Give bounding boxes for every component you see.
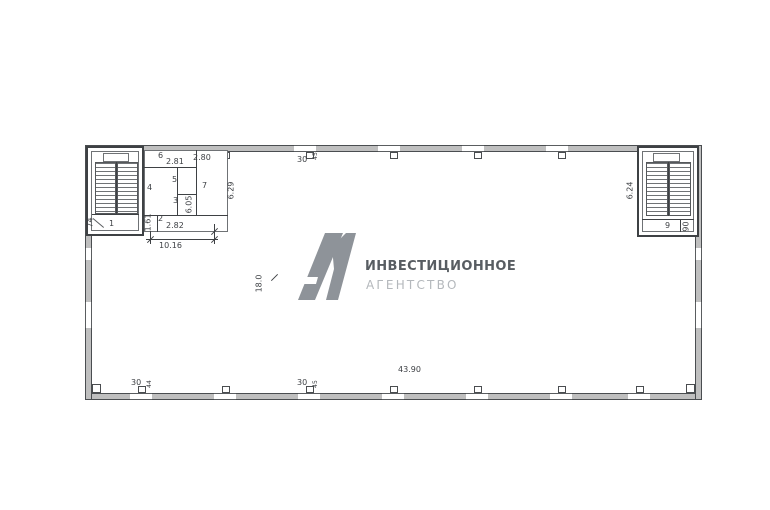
floor-plan: 1 74 6 2.81 2.80 4 5 3 7 6.05 6.29 2 1.6… xyxy=(0,0,770,510)
pilaster xyxy=(390,386,398,393)
dim-label-43-90: 43.90 xyxy=(398,365,421,374)
dim-label-10-16: 10.16 xyxy=(159,241,182,250)
stair-flight xyxy=(117,162,138,214)
room-label-4: 4 xyxy=(147,183,152,192)
room-label-7: 7 xyxy=(202,181,207,190)
dim-label-2-82: 2.82 xyxy=(166,221,184,230)
dim-label-6-05: 6.05 xyxy=(184,196,193,214)
stair-divider xyxy=(668,162,669,216)
stair-flight xyxy=(669,162,691,216)
dim-label-1-61: 1.61 xyxy=(143,214,152,232)
room-label-1: 1 xyxy=(109,219,114,228)
logo-a1-icon xyxy=(298,231,356,300)
window xyxy=(628,393,650,400)
dim-label-44-bottom-left: 44 xyxy=(147,380,153,388)
window xyxy=(298,393,320,400)
pilaster xyxy=(390,152,398,159)
dim-label-45-bottom-mid: 45 xyxy=(313,380,319,388)
dim-label-2-80: 2.80 xyxy=(193,153,211,162)
partition xyxy=(177,167,178,215)
pilaster xyxy=(558,152,566,159)
logo-title: ИНВЕСТИЦИОННОЕ xyxy=(365,259,516,274)
dim-line xyxy=(146,239,218,240)
window xyxy=(130,393,152,400)
pilaster xyxy=(474,386,482,393)
stair-landing xyxy=(653,153,680,162)
room-label-6: 6 xyxy=(158,151,163,160)
corner-step xyxy=(686,384,695,393)
window xyxy=(85,248,92,260)
pilaster xyxy=(636,386,644,393)
room-label-3: 3 xyxy=(173,196,178,205)
pilaster xyxy=(474,152,482,159)
stair-flight xyxy=(95,162,116,214)
window xyxy=(695,302,702,328)
dim-label-6-24: 6.24 xyxy=(625,182,634,200)
dim-label-2-81: 2.81 xyxy=(166,157,184,166)
window xyxy=(382,393,404,400)
dim-extension xyxy=(214,224,215,244)
window xyxy=(550,393,572,400)
dim-tick xyxy=(271,274,278,281)
dim-label-30-bottom-mid: 30 xyxy=(297,378,307,387)
dim-label-30-bottom-left: 30 xyxy=(131,378,141,387)
partition xyxy=(144,167,196,168)
dim-label-45-top: 45 xyxy=(313,152,319,160)
logo-subtitle: АГЕНТСТВО xyxy=(366,278,459,292)
stair-divider xyxy=(116,162,117,214)
window xyxy=(85,302,92,328)
room-label-5: 5 xyxy=(172,175,177,184)
pilaster xyxy=(138,386,146,393)
window xyxy=(695,248,702,260)
stair-landing xyxy=(103,153,129,162)
window xyxy=(462,145,484,152)
window xyxy=(378,145,400,152)
dim-label-74: 74 xyxy=(86,217,95,227)
dim-label-30-top: 30 xyxy=(297,155,307,164)
stair-flight xyxy=(646,162,668,216)
pilaster xyxy=(558,386,566,393)
corner-step xyxy=(92,384,101,393)
dim-label-6-29: 6.29 xyxy=(226,182,235,200)
partition xyxy=(92,214,139,215)
partition xyxy=(642,219,694,220)
window xyxy=(466,393,488,400)
window xyxy=(214,393,236,400)
room-label-2: 2 xyxy=(158,214,163,223)
dim-label-90: 90 xyxy=(682,221,691,231)
pilaster xyxy=(222,386,230,393)
room-label-9: 9 xyxy=(665,221,670,230)
window xyxy=(546,145,568,152)
dim-label-18-0: 18.0 xyxy=(254,275,263,293)
